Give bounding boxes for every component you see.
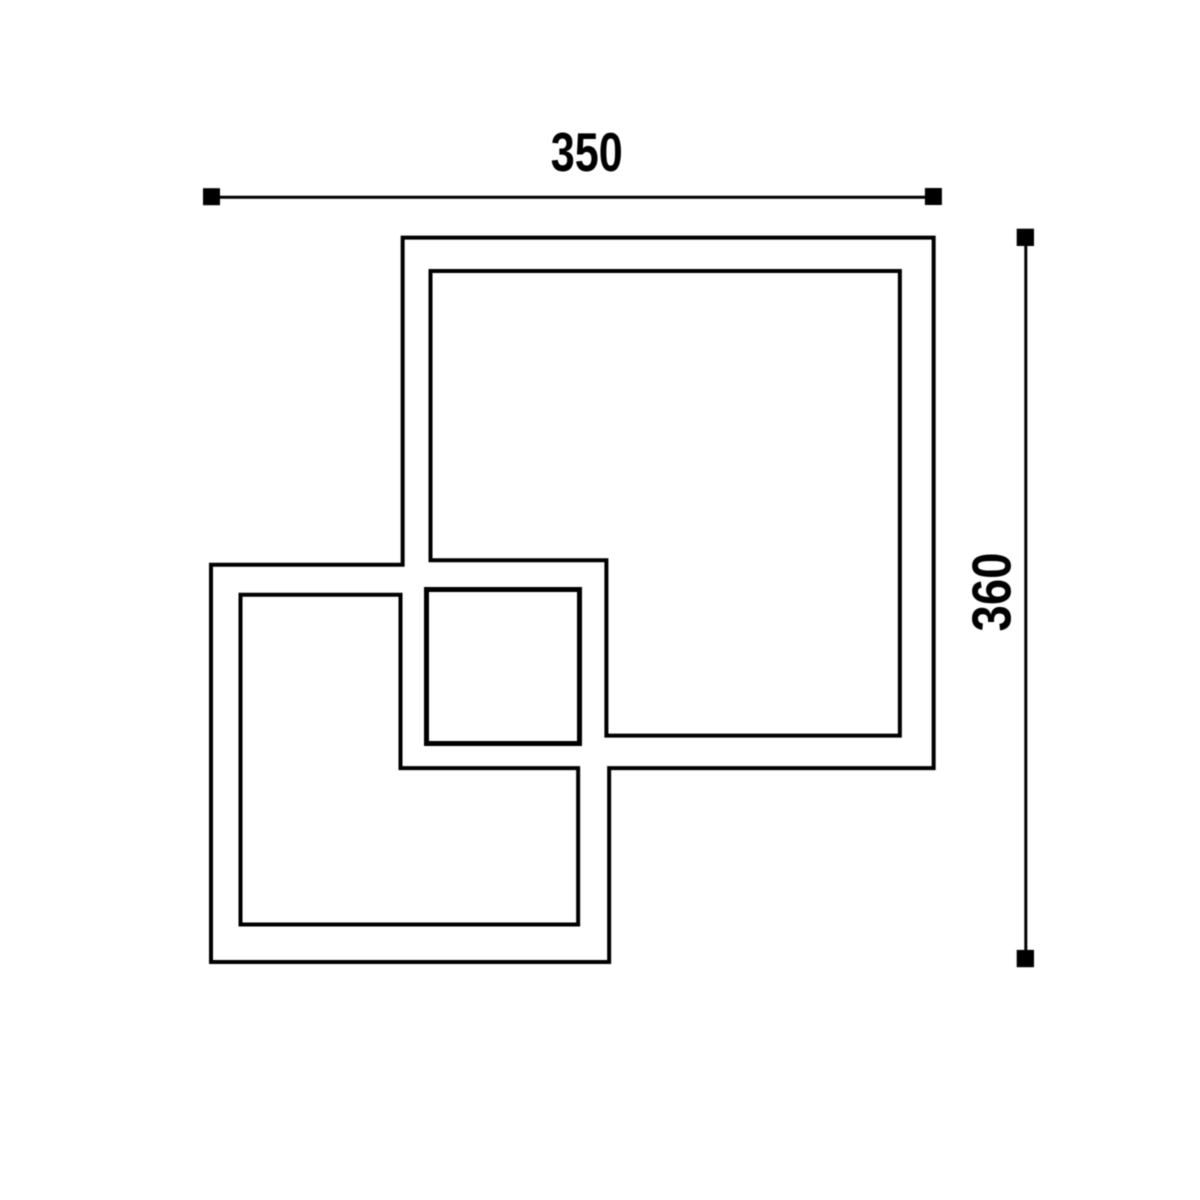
svg-text:350: 350	[551, 121, 623, 183]
svg-text:360: 360	[961, 553, 1023, 632]
